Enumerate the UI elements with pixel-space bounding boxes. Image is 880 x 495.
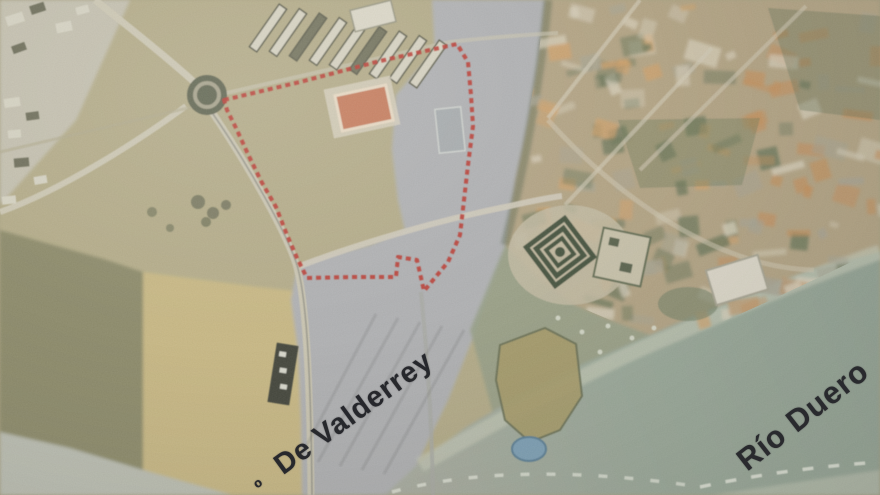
aerial-map-photo: º De Valderrey Río Duero: [0, 0, 880, 495]
photo-grain-light-overlay: [0, 0, 880, 495]
map-canvas: [0, 0, 880, 495]
